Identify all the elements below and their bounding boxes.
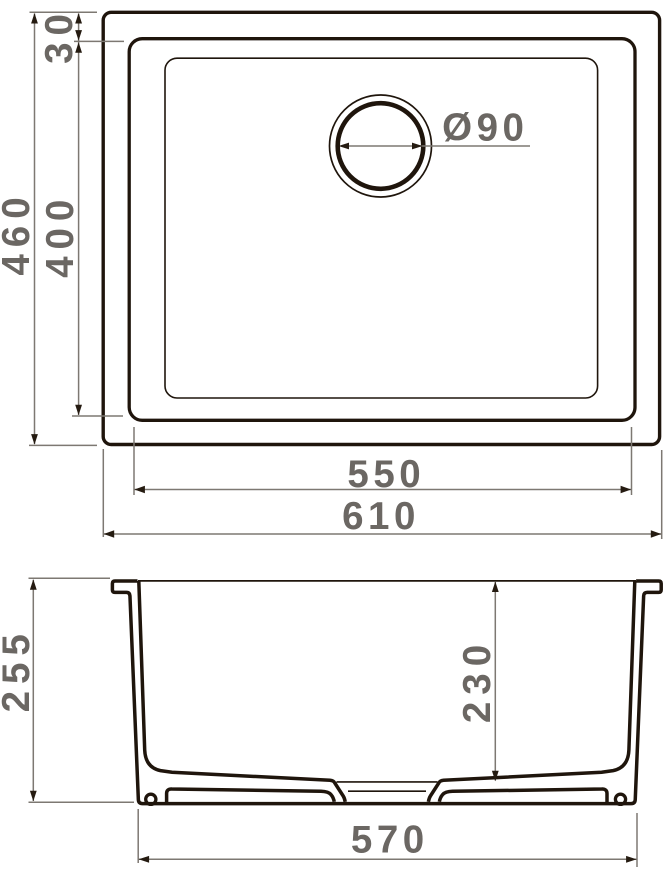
svg-text:570: 570 bbox=[351, 819, 429, 862]
svg-text:550: 550 bbox=[347, 453, 425, 496]
svg-text:255: 255 bbox=[0, 627, 38, 712]
svg-text:610: 610 bbox=[342, 495, 420, 538]
svg-text:30: 30 bbox=[38, 7, 81, 64]
svg-text:460: 460 bbox=[0, 190, 38, 275]
svg-text:400: 400 bbox=[39, 193, 82, 278]
svg-text:Ø90: Ø90 bbox=[442, 107, 528, 150]
svg-text:230: 230 bbox=[456, 638, 499, 723]
